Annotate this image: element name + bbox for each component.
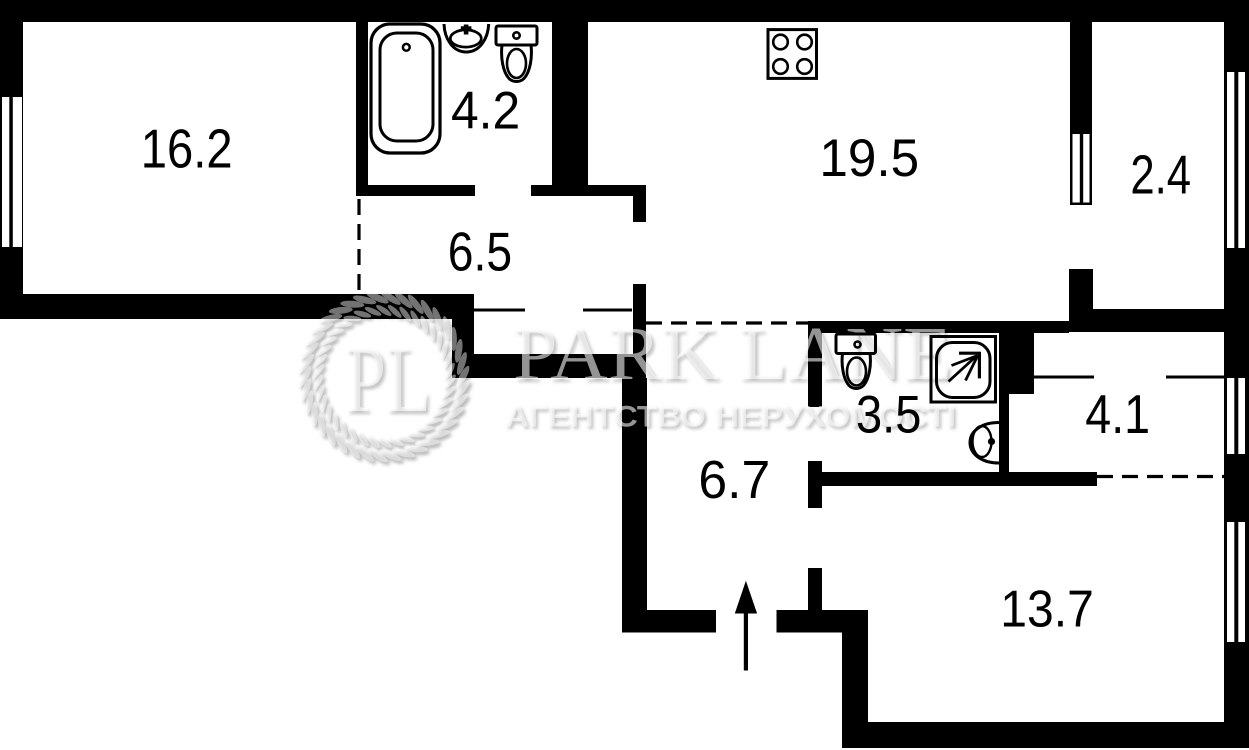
svg-text:13.7: 13.7 — [1000, 581, 1094, 639]
svg-text:PL: PL — [345, 326, 431, 432]
svg-text:19.5: 19.5 — [819, 129, 919, 188]
svg-text:6.7: 6.7 — [698, 450, 770, 510]
svg-text:6.5: 6.5 — [448, 221, 512, 283]
svg-text:2.4: 2.4 — [1130, 144, 1191, 206]
svg-text:PARK LANE: PARK LANE — [513, 312, 952, 396]
svg-text:3.5: 3.5 — [856, 386, 921, 445]
svg-text:4.1: 4.1 — [1085, 383, 1150, 445]
svg-text:16.2: 16.2 — [141, 118, 233, 180]
svg-text:4.2: 4.2 — [451, 82, 520, 141]
